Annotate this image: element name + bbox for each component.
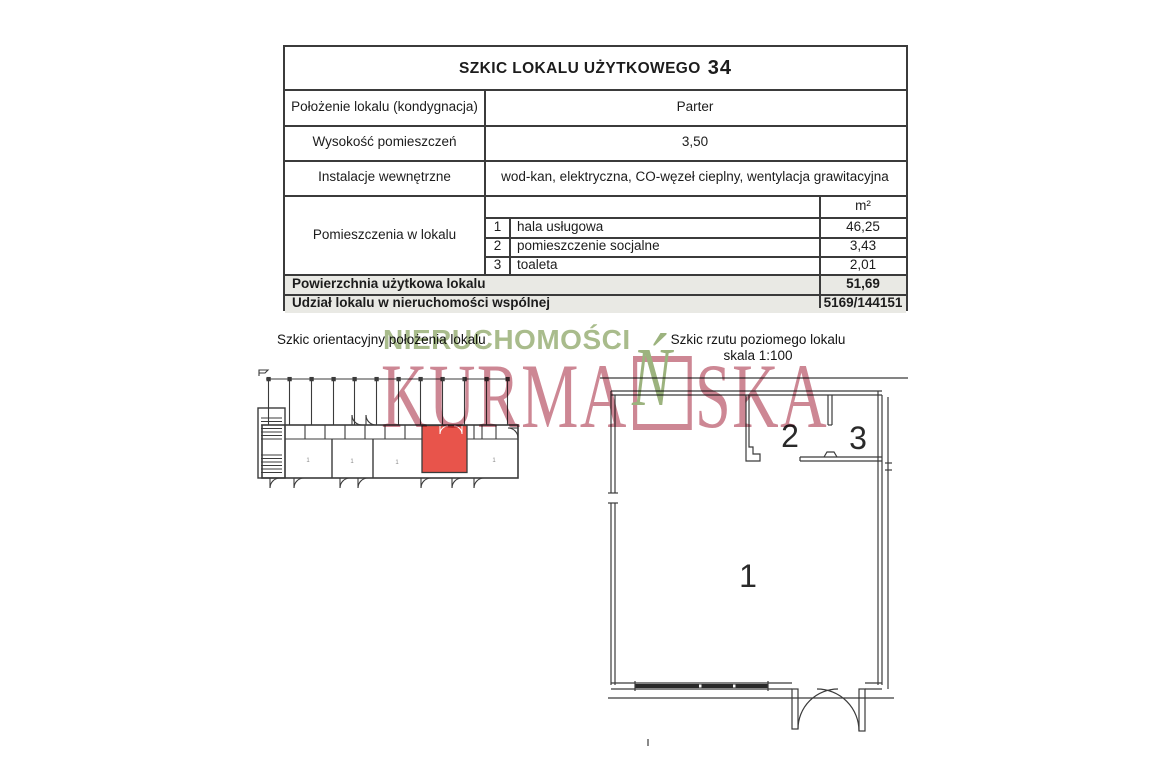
building-outline — [262, 425, 518, 478]
room-name: toaleta — [510, 256, 818, 275]
area-unit-header: m² — [820, 195, 906, 217]
grid-line — [819, 195, 821, 308]
row-label: Wysokość pomieszczeń — [285, 125, 484, 160]
grid-line — [285, 294, 906, 296]
row-value: Parter — [485, 90, 905, 125]
row-value: 3,50 — [485, 125, 905, 160]
svg-text:1: 1 — [395, 460, 399, 466]
room-no: 1 — [485, 217, 510, 237]
grid-line — [485, 217, 906, 219]
grid-line — [285, 195, 906, 197]
row-value: wod-kan, elektryczna, CO-węzeł cieplny, … — [485, 160, 905, 195]
right-wall — [878, 391, 882, 685]
plan-flag-mark — [259, 370, 268, 376]
grid-line — [485, 256, 906, 258]
room-no: 2 — [485, 237, 510, 256]
orientation-plan-svg: 1 1 1 1 — [256, 366, 526, 491]
grid-line — [509, 217, 511, 275]
floor-plan-room-numbers: 1 2 3 — [739, 418, 867, 594]
premises-number: 34 — [708, 57, 732, 80]
top-door-arcs — [352, 415, 376, 425]
svg-text:1: 1 — [492, 458, 496, 464]
orientation-plan-caption: Szkic orientacyjny położenia lokalu — [277, 332, 486, 347]
partition-room2 — [746, 395, 760, 461]
partition-room2-3 — [828, 395, 832, 425]
grid-line — [285, 125, 906, 127]
premises-info-table: SZKIC LOKALU UŻYTKOWEGO 34 Położenie lok… — [283, 45, 908, 311]
room-area: 3,43 — [820, 237, 906, 256]
rooms-section-label: Pomieszczenia w lokalu — [285, 195, 484, 275]
summary-value: 51,69 — [820, 275, 906, 294]
room-name: hala usługowa — [510, 217, 818, 237]
room2-label: 2 — [781, 418, 799, 454]
table-title-row: SZKIC LOKALU UŻYTKOWEGO 34 — [285, 47, 906, 90]
partition-room3-bottom — [800, 452, 882, 461]
room3-label: 3 — [849, 420, 867, 456]
row-label: Instalacje wewnętrzne — [285, 160, 484, 195]
summary-label: Udział lokalu w nieruchomości wspólnej — [285, 294, 818, 313]
room1-label: 1 — [739, 558, 757, 594]
right-end-door — [508, 428, 518, 438]
row-label: Położenie lokalu (kondygnacja) — [285, 90, 484, 125]
room-no: 3 — [485, 256, 510, 275]
floor-plan-caption-line1: Szkic rzutu poziomego lokalu — [662, 332, 854, 348]
canopy-posts — [267, 378, 509, 426]
highlighted-unit — [422, 426, 467, 473]
floor-plan-svg: 1 2 3 — [597, 373, 912, 751]
grid-line — [285, 274, 906, 276]
svg-text:1: 1 — [350, 459, 354, 465]
room-area: 46,25 — [820, 217, 906, 237]
summary-value: 5169/144151 — [820, 294, 906, 313]
left-wall — [608, 391, 618, 685]
entrance-door-arcs — [270, 478, 484, 488]
lower-partitions — [285, 425, 373, 478]
entrance-double-door — [792, 689, 865, 731]
orientation-room-numbers: 1 1 1 1 — [306, 458, 496, 466]
room-area: 2,01 — [820, 256, 906, 275]
grid-line — [485, 237, 906, 239]
floor-plan-scale: skala 1:100 — [662, 348, 854, 364]
grid-line — [484, 89, 486, 275]
summary-label: Powierzchnia użytkowa lokalu — [285, 275, 818, 294]
document-title: SZKIC LOKALU UŻYTKOWEGO — [459, 60, 701, 78]
svg-text:1: 1 — [306, 458, 310, 464]
room-name: pomieszczenie socjalne — [510, 237, 818, 256]
grid-line — [285, 89, 906, 91]
document-page: SZKIC LOKALU UŻYTKOWEGO 34 Położenie lok… — [0, 0, 1160, 757]
floor-plan-caption: Szkic rzutu poziomego lokalu skala 1:100 — [662, 332, 854, 363]
grid-line — [285, 160, 906, 162]
